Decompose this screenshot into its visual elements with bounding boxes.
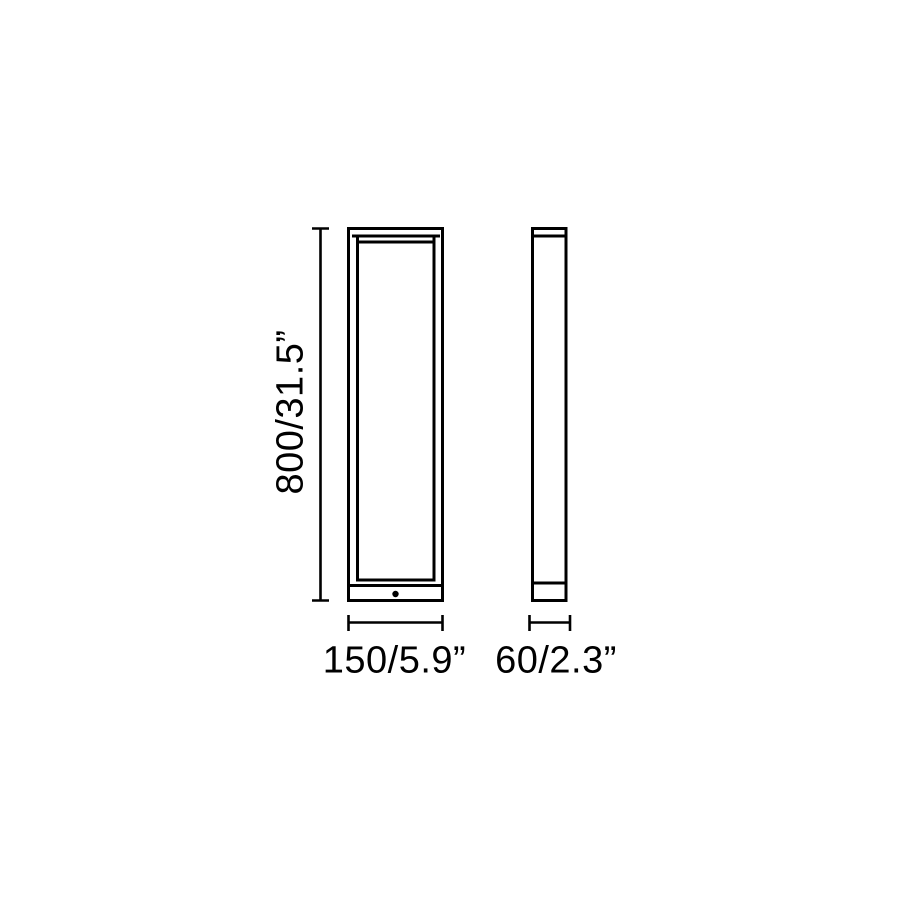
front-outer-frame [349,229,443,601]
depth-dimension-line [530,615,571,631]
height-dimension-label: 800/31.5” [270,329,312,494]
side-outer-frame [533,229,567,601]
front-view [347,229,444,601]
height-dimension-line [312,229,329,601]
side-view [533,229,567,601]
width-dimension-line [349,615,443,631]
dimension-drawing: 800/31.5” 150/5.9” 60/2.3” [0,0,900,900]
depth-dimension-label: 60/2.3” [495,640,617,682]
drawing-canvas: 800/31.5” 150/5.9” 60/2.3” [0,0,900,900]
width-dimension-label: 150/5.9” [323,640,466,682]
front-screw-dot [392,591,398,597]
